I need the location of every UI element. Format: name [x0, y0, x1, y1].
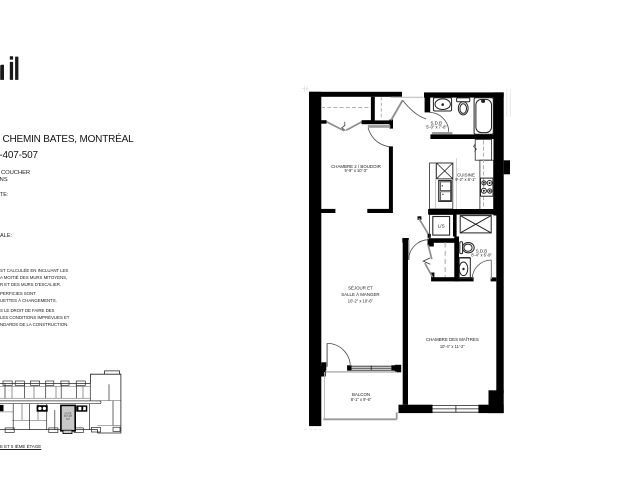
- svg-text:UNITÉ: UNITÉ: [65, 412, 72, 415]
- svg-text:SALLE À MANGER: SALLE À MANGER: [341, 292, 379, 297]
- svg-text:SÉJOUR ET: SÉJOUR ET: [348, 285, 373, 290]
- svg-text:9'-2" x 8'-1": 9'-2" x 8'-1": [455, 177, 476, 182]
- svg-text:10'-4" x 11'-2": 10'-4" x 11'-2": [440, 344, 465, 349]
- svg-text:8'-4" x 6'-9": 8'-4" x 6'-9": [471, 253, 492, 258]
- svg-text:10'-2" x 10'-6": 10'-2" x 10'-6": [348, 298, 374, 303]
- svg-text:CHAMBRE DES MAÎTRES: CHAMBRE DES MAÎTRES: [426, 337, 479, 342]
- svg-text:5'-0" x 7'-8": 5'-0" x 7'-8": [426, 125, 447, 130]
- svg-text:9'-9" x 10'-3": 9'-9" x 10'-3": [345, 168, 368, 173]
- svg-text:L/S: L/S: [438, 224, 445, 229]
- svg-text:307-407: 307-407: [64, 416, 73, 418]
- svg-text:8'-1" x 9'-6": 8'-1" x 9'-6": [351, 397, 372, 402]
